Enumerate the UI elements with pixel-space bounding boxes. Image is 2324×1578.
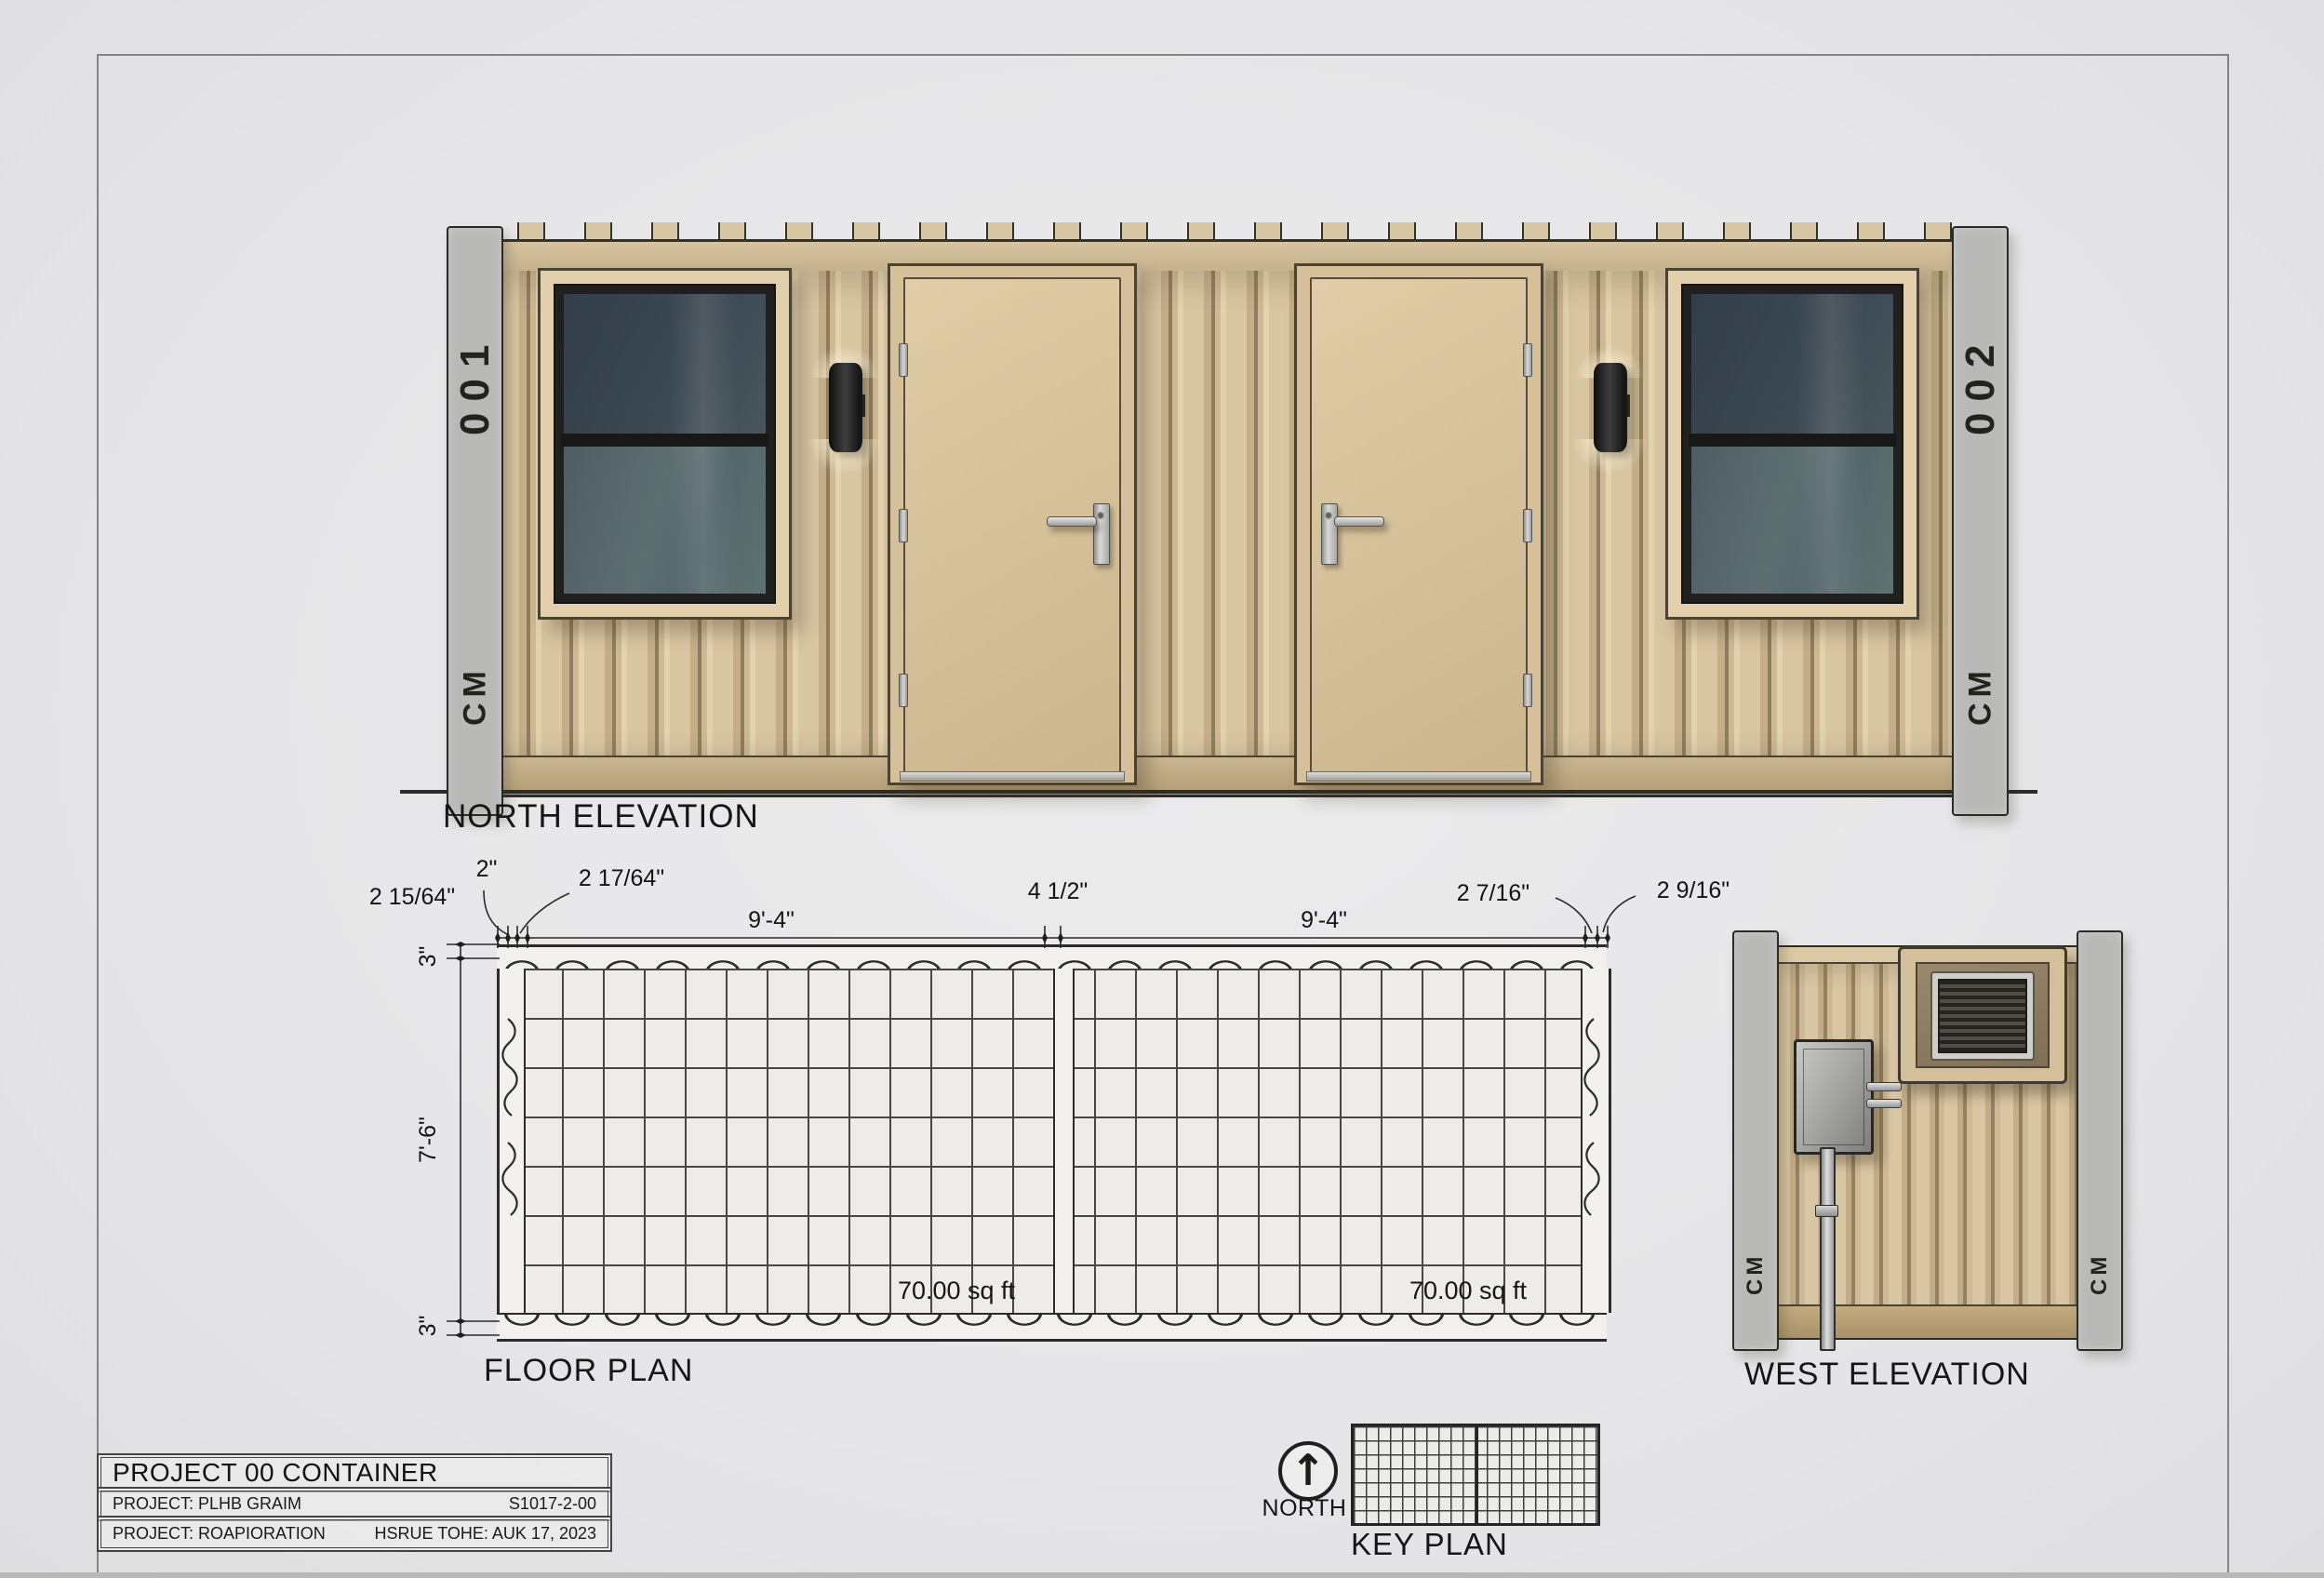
- post-number-label: 001: [452, 273, 499, 496]
- door-hinge: [1523, 674, 1532, 707]
- north-label: NORTH: [1252, 1495, 1356, 1522]
- door-hinge: [899, 343, 908, 377]
- post-cm-label: CM: [457, 635, 493, 756]
- north-arrow-icon: ↑: [1290, 1447, 1327, 1493]
- ac-unit: [1898, 946, 2067, 1084]
- window-sash: [554, 284, 776, 604]
- conduit-stub: [1866, 1082, 1902, 1091]
- wall-squiggles: [502, 1019, 1598, 1215]
- dim-label: 2": [461, 856, 513, 883]
- dim-lines: [447, 890, 1636, 1337]
- door-right: [1294, 263, 1543, 785]
- dim-label-vertical: 7'-6": [386, 1098, 470, 1182]
- dim-label: 2 7/16": [1433, 880, 1554, 907]
- glass-reflection: [1796, 447, 1865, 594]
- door-hinge: [899, 509, 908, 542]
- ac-grille-icon: [1938, 979, 2027, 1053]
- door-hinge: [1523, 343, 1532, 377]
- conduit-coupling: [1815, 1205, 1838, 1217]
- dim-label: 2 15/64": [356, 884, 468, 911]
- post-cm-label: CM: [2087, 1232, 2113, 1316]
- issue-date: HSRUE TOHE: AUK 17, 2023: [375, 1524, 596, 1544]
- window-left: [538, 268, 792, 620]
- page-bottom-edge: [0, 1572, 2324, 1578]
- door-lock-plate: [1093, 503, 1110, 565]
- dim-label: 9'-4": [725, 907, 818, 934]
- post-number-label: 002: [1957, 273, 2004, 496]
- door-threshold: [900, 771, 1125, 782]
- door-lock-cylinder: [1325, 512, 1332, 519]
- west-elevation-title: WEST ELEVATION: [1744, 1357, 2030, 1393]
- post-cm-label: CM: [1962, 635, 1998, 756]
- door-threshold: [1306, 771, 1531, 782]
- wall-sconce-right: [1578, 322, 1641, 499]
- door-lever-handle: [1334, 516, 1384, 527]
- title-block-inner: PROJECT: ROAPIORATION HSRUE TOHE: AUK 17…: [100, 1519, 608, 1548]
- dim-label-vertical: 3": [407, 1304, 448, 1348]
- door-lock-plate: [1321, 503, 1338, 565]
- sconce-cylinder-icon: [829, 363, 862, 452]
- window-meeting-rail: [561, 434, 768, 447]
- north-elevation-title: NORTH ELEVATION: [443, 798, 759, 836]
- panel-door-seam: [1803, 1049, 1864, 1145]
- door-hinge: [1523, 509, 1532, 542]
- north-arrow-badge: ↑: [1278, 1441, 1338, 1501]
- key-plan-title: KEY PLAN: [1351, 1527, 1508, 1562]
- sconce-cylinder-icon: [1594, 363, 1627, 452]
- project-name: PROJECT: PLHB GRAIM: [113, 1494, 301, 1514]
- roof-corrugation-tabs: [499, 222, 1953, 240]
- window-sash: [1681, 284, 1903, 604]
- conduit-riser: [1820, 1147, 1836, 1351]
- conduit-stub: [1866, 1099, 1902, 1108]
- window-pane-bottom: [1691, 447, 1893, 594]
- door-left: [888, 263, 1137, 785]
- electrical-panel: [1794, 1039, 1874, 1155]
- ground-line: [400, 790, 2037, 794]
- west-corner-post-right: CM: [2077, 930, 2123, 1351]
- sheet-number: S1017-2-00: [509, 1494, 596, 1514]
- key-plan-partition: [1476, 1426, 1478, 1523]
- dim-label: 2 17/64": [566, 865, 677, 892]
- window-right: [1665, 268, 1919, 620]
- key-plan-grid: [1351, 1424, 1600, 1526]
- post-cm-label: CM: [1743, 1232, 1769, 1316]
- corner-post-002: 002 CM: [1952, 226, 2009, 816]
- wall-sconce-left: [813, 322, 876, 499]
- west-corner-post-left: CM: [1732, 930, 1779, 1351]
- window-pane-top: [564, 294, 766, 434]
- title-block-inner: PROJECT 00 CONTAINER: [100, 1457, 608, 1489]
- window-meeting-rail: [1689, 434, 1896, 447]
- title-block-row-issue: PROJECT: ROAPIORATION HSRUE TOHE: AUK 17…: [97, 1516, 612, 1552]
- title-block-inner: PROJECT: PLHB GRAIM S1017-2-00: [100, 1491, 608, 1518]
- window-pane-top: [1691, 294, 1893, 434]
- dim-label-vertical: 3": [407, 934, 448, 979]
- project-corporation: PROJECT: ROAPIORATION: [113, 1524, 326, 1544]
- glass-reflection: [1796, 294, 1865, 434]
- dim-label: 2 9/16": [1633, 877, 1754, 904]
- door-lever-handle: [1047, 516, 1097, 527]
- dim-label: 4 1/2": [1011, 878, 1104, 905]
- glass-reflection: [669, 294, 738, 434]
- dimension-linework: [354, 842, 1712, 1363]
- dim-label: 9'-4": [1277, 907, 1370, 934]
- door-lock-cylinder: [1097, 512, 1104, 519]
- floor-plan-title: FLOOR PLAN: [484, 1353, 693, 1389]
- drawing-sheet: 001 CM 002 CM NORTH ELEVATION 70.00 sq f…: [0, 0, 2324, 1578]
- dim-ticks: [455, 932, 1610, 1338]
- window-pane-bottom: [564, 447, 766, 594]
- corner-post-001: 001 CM: [447, 226, 503, 816]
- door-hinge: [899, 674, 908, 707]
- project-title: PROJECT 00 CONTAINER: [113, 1458, 438, 1488]
- glass-reflection: [669, 447, 738, 594]
